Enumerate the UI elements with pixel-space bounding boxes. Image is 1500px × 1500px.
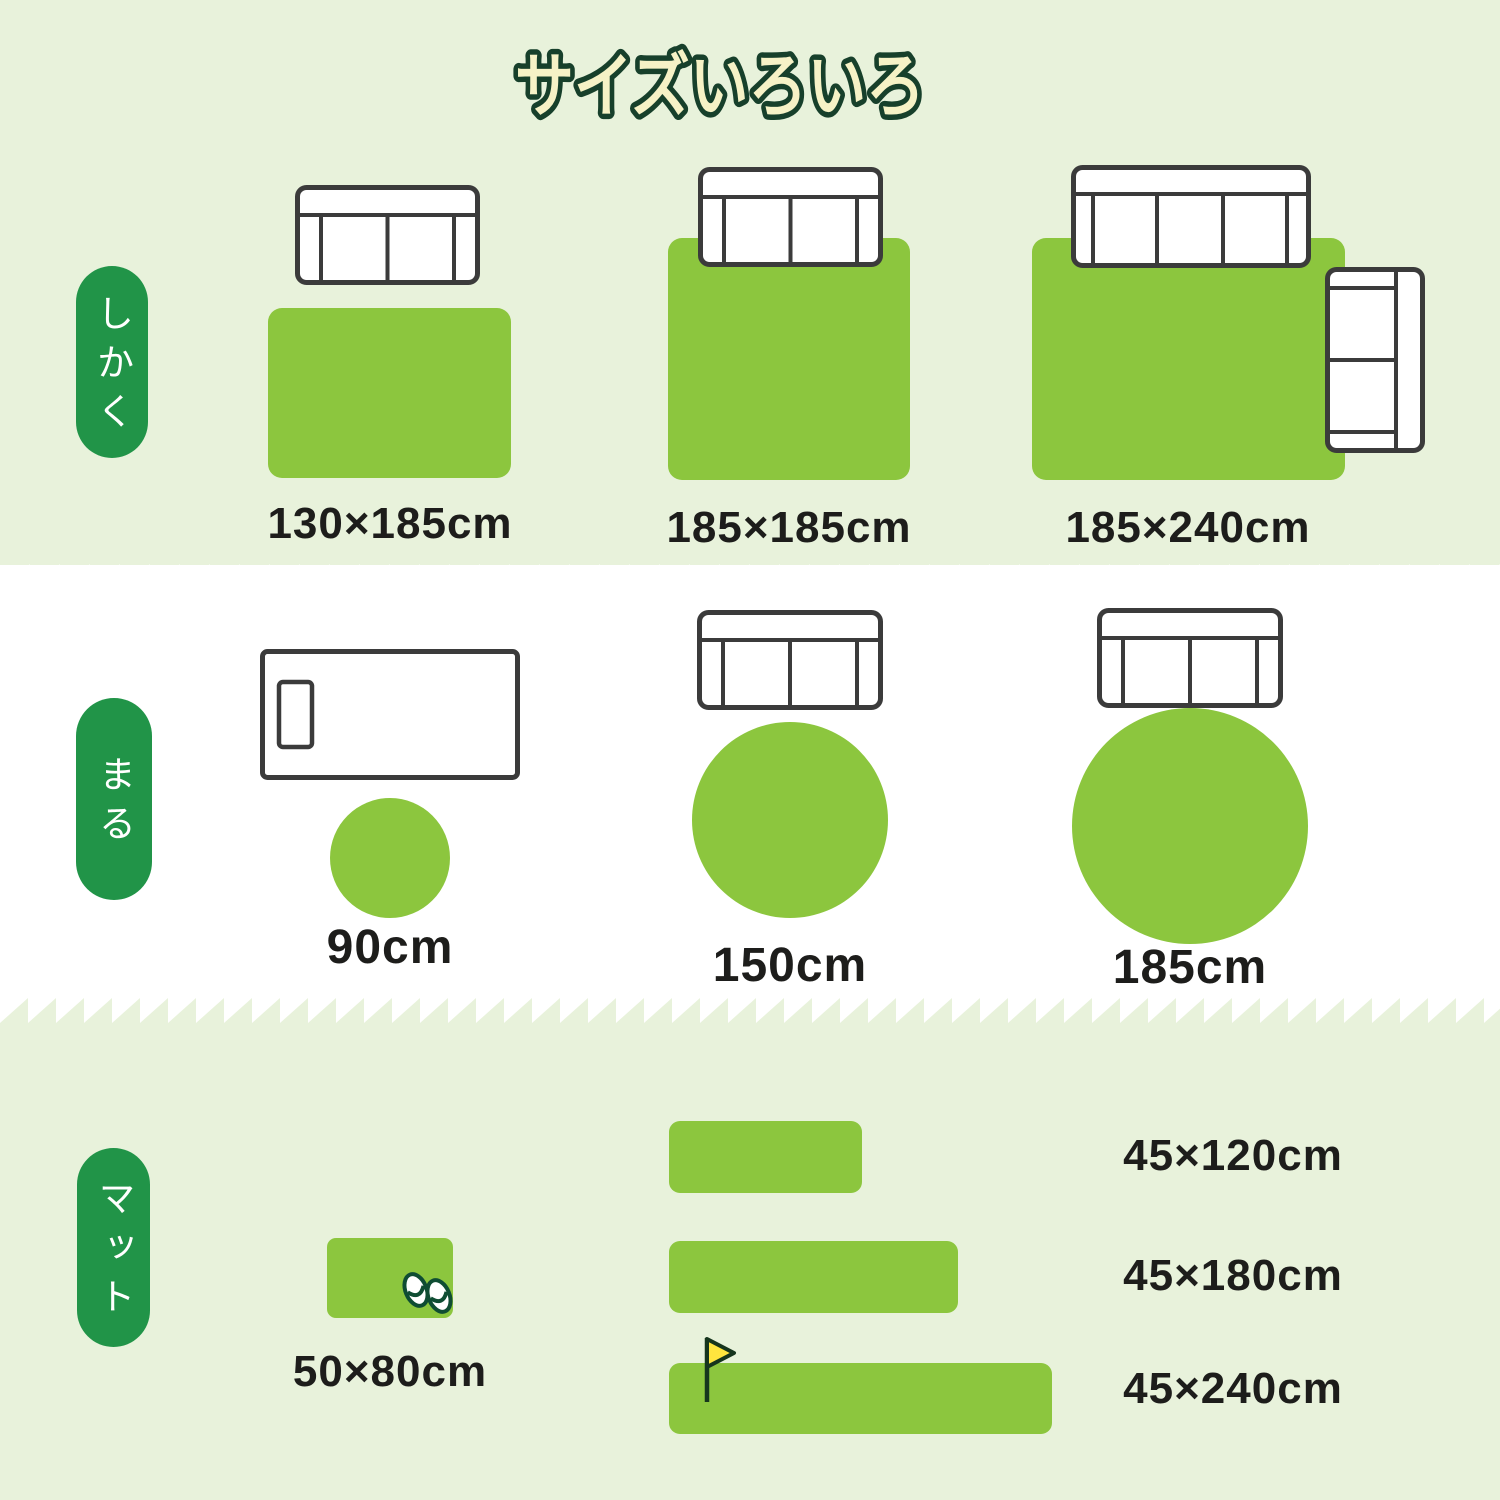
sofa-3seat-icon xyxy=(1071,165,1311,268)
section-rect-label: しかく xyxy=(94,284,131,441)
svg-text:サイズいろいろ: サイズいろいろ xyxy=(515,47,925,125)
size-label-150cm: 150cm xyxy=(713,942,867,990)
rug-rect-185x240 xyxy=(1032,238,1345,480)
sofa-2seat-icon xyxy=(295,185,480,285)
mat-45x120 xyxy=(669,1121,862,1193)
section-mat-label: マット xyxy=(95,1169,132,1326)
bed-icon xyxy=(260,649,520,780)
size-label-185x240: 185×240cm xyxy=(1065,506,1310,550)
section-round-pill: まる xyxy=(76,698,152,900)
size-label-50x80: 50×80cm xyxy=(293,1350,487,1394)
flag-icon xyxy=(690,1333,750,1407)
slippers-icon xyxy=(398,1262,458,1324)
size-label-130x185: 130×185cm xyxy=(267,502,512,546)
size-label-90cm: 90cm xyxy=(327,924,454,972)
rug-circle-150 xyxy=(692,722,888,918)
sofa-2seat-icon xyxy=(1097,608,1283,708)
zigzag-divider-top-icon xyxy=(0,564,1500,600)
size-label-45x180: 45×180cm xyxy=(1123,1254,1343,1298)
size-label-185cm: 185cm xyxy=(1113,944,1267,992)
rug-size-infographic: サイズいろいろ しかく 130×185cm 185×185cm xyxy=(0,0,1500,1500)
sofa-2seat-icon xyxy=(698,167,883,267)
sofa-2seat-icon xyxy=(697,610,883,710)
rug-rect-130x185 xyxy=(268,308,511,478)
rug-rect-185x185 xyxy=(668,238,910,480)
zigzag-divider-bottom-icon xyxy=(0,998,1500,1023)
section-round-label: まる xyxy=(96,745,133,853)
section-rect-pill: しかく xyxy=(76,266,148,458)
section-mat-pill: マット xyxy=(77,1148,150,1347)
size-label-185x185: 185×185cm xyxy=(666,506,911,550)
mat-45x180 xyxy=(669,1241,958,1313)
page-title: サイズいろいろ xyxy=(360,26,1080,136)
sofa-2seat-vertical-icon xyxy=(1325,267,1425,453)
rug-circle-90 xyxy=(330,798,450,918)
size-label-45x120: 45×120cm xyxy=(1123,1134,1343,1178)
rug-circle-185 xyxy=(1072,708,1308,944)
size-label-45x240: 45×240cm xyxy=(1123,1367,1343,1411)
